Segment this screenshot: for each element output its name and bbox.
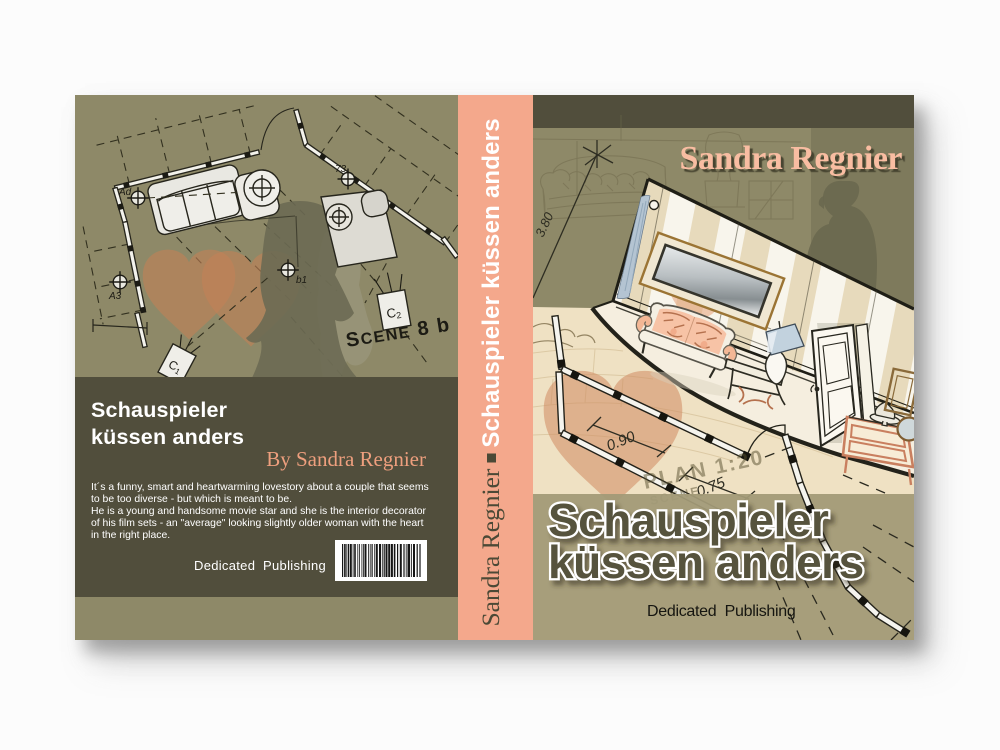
svg-text:3.80: 3.80 xyxy=(533,209,557,239)
svg-text:b1: b1 xyxy=(296,275,307,286)
svg-text:Ad: Ad xyxy=(118,187,132,198)
svg-text:73: 73 xyxy=(335,164,347,175)
svg-text:A3: A3 xyxy=(108,291,122,302)
